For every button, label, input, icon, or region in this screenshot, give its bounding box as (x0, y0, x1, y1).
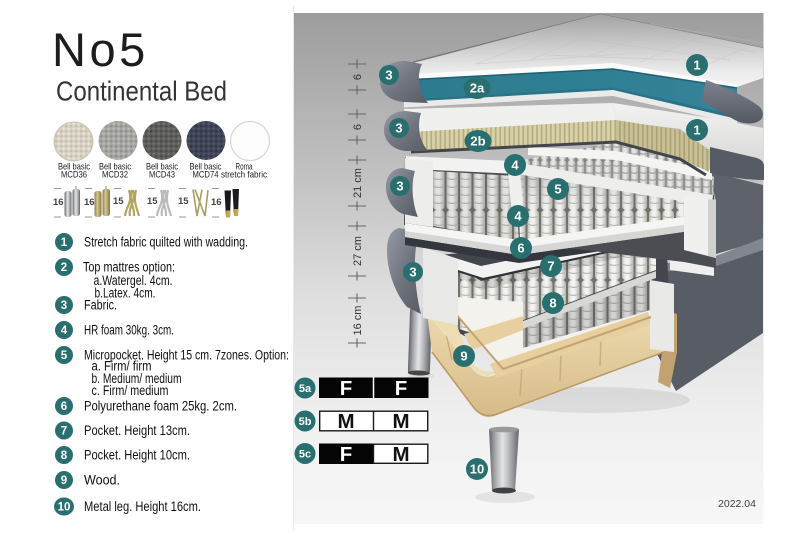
svg-text:9: 9 (460, 349, 467, 364)
svg-text:4: 4 (514, 209, 522, 224)
svg-text:15: 15 (113, 196, 124, 207)
svg-text:10: 10 (58, 502, 71, 514)
svg-text:MCD36: MCD36 (61, 170, 87, 180)
svg-text:1: 1 (693, 58, 700, 73)
svg-text:Continental Bed: Continental Bed (56, 76, 227, 107)
svg-text:M: M (337, 410, 354, 433)
svg-text:Polyurethane foam 25kg. 2cm.: Polyurethane foam 25kg. 2cm. (84, 399, 237, 414)
svg-text:M: M (392, 410, 409, 433)
svg-text:5: 5 (61, 350, 68, 362)
svg-text:4: 4 (511, 158, 519, 173)
svg-text:16 cm: 16 cm (352, 306, 364, 336)
svg-text:MCD43: MCD43 (149, 170, 175, 180)
svg-text:1: 1 (61, 237, 68, 249)
svg-text:Wood.: Wood. (84, 473, 120, 488)
svg-text:15: 15 (178, 196, 189, 207)
svg-text:M: M (392, 443, 409, 466)
svg-text:6: 6 (352, 74, 364, 80)
svg-text:3: 3 (409, 265, 416, 280)
svg-text:Pocket. Height 13cm.: Pocket. Height 13cm. (84, 423, 190, 438)
svg-text:2: 2 (61, 262, 67, 274)
svg-text:3: 3 (395, 121, 402, 136)
svg-text:Metal leg. Height 16cm.: Metal leg. Height 16cm. (84, 499, 201, 514)
svg-text:F: F (395, 377, 408, 400)
svg-text:3: 3 (61, 300, 67, 312)
svg-text:16: 16 (53, 197, 64, 208)
svg-text:2b: 2b (470, 134, 485, 149)
svg-text:9: 9 (61, 475, 67, 487)
svg-text:6: 6 (517, 241, 524, 256)
svg-text:6: 6 (61, 401, 67, 413)
svg-text:5: 5 (554, 182, 561, 197)
svg-text:c. Firm/ medium: c. Firm/ medium (92, 383, 169, 398)
svg-text:2022.04: 2022.04 (718, 498, 756, 510)
svg-text:15: 15 (147, 196, 158, 207)
svg-text:5b: 5b (299, 416, 312, 428)
svg-text:F: F (340, 377, 353, 400)
svg-text:3: 3 (396, 179, 403, 194)
svg-text:16: 16 (211, 197, 222, 208)
svg-text:stretch fabric: stretch fabric (221, 170, 267, 180)
svg-text:Fabric.: Fabric. (84, 298, 117, 313)
svg-text:10: 10 (470, 462, 484, 477)
svg-text:8: 8 (61, 450, 68, 462)
svg-text:MCD74: MCD74 (193, 170, 219, 180)
svg-text:4: 4 (61, 325, 68, 337)
svg-text:3: 3 (385, 68, 392, 83)
svg-text:7: 7 (61, 426, 67, 438)
svg-text:HR foam 30kg. 3cm.: HR foam 30kg. 3cm. (84, 323, 174, 338)
svg-text:MCD32: MCD32 (102, 170, 128, 180)
svg-text:F: F (340, 443, 353, 466)
svg-text:16: 16 (84, 197, 95, 208)
svg-text:7: 7 (547, 259, 554, 274)
svg-text:No5: No5 (52, 23, 149, 76)
svg-text:1: 1 (693, 123, 700, 138)
svg-text:21 cm: 21 cm (352, 168, 364, 198)
svg-text:27 cm: 27 cm (352, 236, 364, 266)
svg-text:5c: 5c (299, 449, 311, 461)
svg-text:5a: 5a (299, 383, 312, 395)
svg-text:8: 8 (549, 296, 556, 311)
svg-text:Pocket. Height 10cm.: Pocket. Height 10cm. (84, 448, 190, 463)
svg-text:Stretch fabric quilted with wa: Stretch fabric quilted with wadding. (84, 235, 248, 250)
svg-text:6: 6 (352, 124, 364, 130)
svg-text:2a: 2a (470, 81, 485, 96)
